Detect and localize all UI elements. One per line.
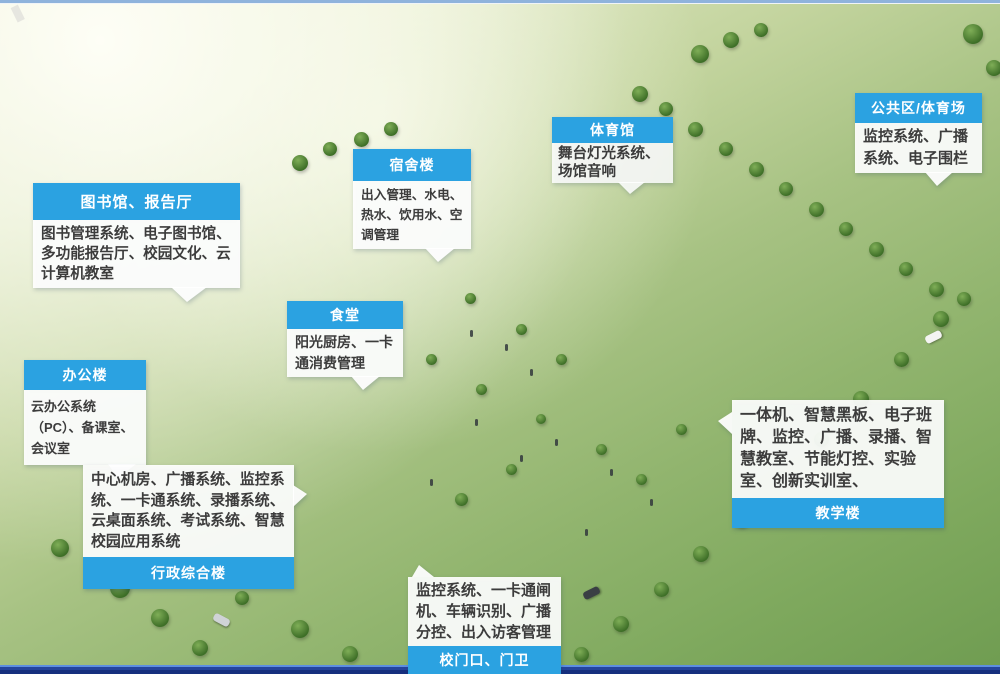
tree-icon xyxy=(516,324,527,335)
tree-icon xyxy=(636,474,647,485)
person-icon xyxy=(555,439,558,446)
callout-dormitory-title: 宿舍楼 xyxy=(353,149,471,181)
tree-icon xyxy=(719,142,733,156)
tree-icon xyxy=(292,155,308,171)
tree-icon xyxy=(574,647,589,662)
callout-dormitory-body: 出入管理、水电、热水、饮用水、空调管理 xyxy=(353,181,471,249)
callout-school-gate: 监控系统、一卡通闸机、车辆识别、广播分控、出入访客管理 校门口、门卫 xyxy=(408,577,561,674)
callout-gymnasium-body: 舞台灯光系统、场馆音响 xyxy=(552,143,673,183)
tree-icon xyxy=(899,262,913,276)
tree-icon xyxy=(869,242,884,257)
tree-icon xyxy=(235,591,249,605)
tree-icon xyxy=(929,282,944,297)
callout-tail-down-icon xyxy=(425,248,455,262)
tree-icon xyxy=(693,546,709,562)
callout-tail-up-icon xyxy=(412,565,434,577)
callout-library: 图书馆、报告厅 图书管理系统、电子图书馆、多功能报告厅、校园文化、云计算机教室 xyxy=(33,183,240,288)
callout-teaching-building-title: 教学楼 xyxy=(732,498,944,528)
tree-icon xyxy=(963,24,983,44)
callout-teaching-building: 一体机、智慧黑板、电子班牌、监控、广播、录播、智慧教室、节能灯控、实验室、创新实… xyxy=(732,400,944,528)
tree-icon xyxy=(613,616,629,632)
callout-school-gate-title: 校门口、门卫 xyxy=(408,646,561,674)
callout-canteen-title: 食堂 xyxy=(287,301,403,329)
callout-school-gate-body: 监控系统、一卡通闸机、车辆识别、广播分控、出入访客管理 xyxy=(408,577,561,646)
callout-public-area-title: 公共区/体育场 xyxy=(855,93,982,123)
campus-aerial-diagram: 图书馆、报告厅 图书管理系统、电子图书馆、多功能报告厅、校园文化、云计算机教室 … xyxy=(0,0,1000,674)
callout-admin-complex: 中心机房、广播系统、监控系统、一卡通系统、录播系统、云桌面系统、考试系统、智慧校… xyxy=(83,465,294,589)
tree-icon xyxy=(749,162,764,177)
tree-icon xyxy=(986,60,1000,76)
tree-icon xyxy=(291,620,309,638)
callout-tail-right-icon xyxy=(293,485,307,507)
tree-icon xyxy=(754,23,768,37)
tree-icon xyxy=(654,582,669,597)
tree-icon xyxy=(723,32,739,48)
tree-icon xyxy=(596,444,607,455)
tree-icon xyxy=(676,424,687,435)
tree-icon xyxy=(151,609,169,627)
person-icon xyxy=(650,499,653,506)
tree-icon xyxy=(659,102,673,116)
callout-canteen: 食堂 阳光厨房、一卡通消费管理 xyxy=(287,301,403,377)
tree-icon xyxy=(506,464,517,475)
tree-icon xyxy=(809,202,824,217)
tree-icon xyxy=(691,45,709,63)
callout-tail-down-icon xyxy=(351,376,380,390)
callout-admin-complex-body: 中心机房、广播系统、监控系统、一卡通系统、录播系统、云桌面系统、考试系统、智慧校… xyxy=(83,465,294,557)
person-icon xyxy=(470,330,473,337)
callout-public-area: 公共区/体育场 监控系统、广播系统、电子围栏 xyxy=(855,93,982,173)
car-icon xyxy=(212,612,231,627)
tree-icon xyxy=(688,122,703,137)
tree-icon xyxy=(384,122,398,136)
car-icon xyxy=(924,330,943,345)
callout-office: 办公楼 云办公系统（PC）、备课室、会议室 xyxy=(24,360,146,465)
callout-tail-left-icon xyxy=(718,412,732,434)
callout-admin-complex-title: 行政综合楼 xyxy=(83,557,294,589)
tree-icon xyxy=(839,222,853,236)
tree-icon xyxy=(342,646,358,662)
tree-icon xyxy=(192,640,208,656)
callout-office-body: 云办公系统（PC）、备课室、会议室 xyxy=(24,390,146,465)
callout-canteen-body: 阳光厨房、一卡通消费管理 xyxy=(287,329,403,377)
tree-icon xyxy=(933,311,949,327)
callout-office-title: 办公楼 xyxy=(24,360,146,390)
callout-public-area-body: 监控系统、广播系统、电子围栏 xyxy=(855,123,982,173)
tree-icon xyxy=(957,292,971,306)
callout-gymnasium: 体育馆 舞台灯光系统、场馆音响 xyxy=(552,117,673,183)
callout-teaching-building-body: 一体机、智慧黑板、电子班牌、监控、广播、录播、智慧教室、节能灯控、实验室、创新实… xyxy=(732,400,944,498)
tree-icon xyxy=(632,86,648,102)
tree-icon xyxy=(476,384,487,395)
person-icon xyxy=(530,369,533,376)
callout-library-title: 图书馆、报告厅 xyxy=(33,183,240,220)
callout-tail-down-icon xyxy=(171,287,207,302)
tree-icon xyxy=(426,354,437,365)
callout-tail-down-icon xyxy=(925,172,953,186)
person-icon xyxy=(585,529,588,536)
tree-icon xyxy=(354,132,369,147)
person-icon xyxy=(610,469,613,476)
person-icon xyxy=(475,419,478,426)
callout-library-body: 图书管理系统、电子图书馆、多功能报告厅、校园文化、云计算机教室 xyxy=(33,220,240,288)
car-icon xyxy=(582,586,601,601)
tree-icon xyxy=(894,352,909,367)
tree-icon xyxy=(465,293,476,304)
callout-gymnasium-title: 体育馆 xyxy=(552,117,673,143)
callout-tail-down-icon xyxy=(618,182,645,194)
callout-dormitory: 宿舍楼 出入管理、水电、热水、饮用水、空调管理 xyxy=(353,149,471,249)
tree-icon xyxy=(323,142,337,156)
person-icon xyxy=(505,344,508,351)
person-icon xyxy=(430,479,433,486)
top-border-line xyxy=(0,0,1000,5)
tree-icon xyxy=(556,354,567,365)
tree-icon xyxy=(536,414,546,424)
person-icon xyxy=(520,455,523,462)
tree-icon xyxy=(779,182,793,196)
tree-icon xyxy=(51,539,69,557)
tree-icon xyxy=(455,493,468,506)
